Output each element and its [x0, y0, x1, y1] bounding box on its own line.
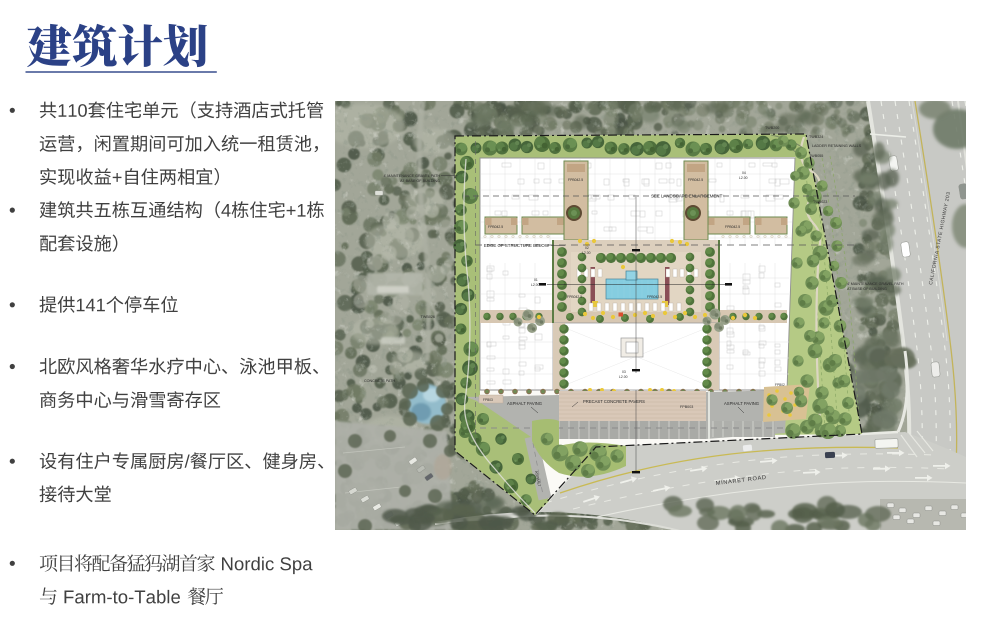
- svg-text:4' MAINTENANCE GRAVEL PATH: 4' MAINTENANCE GRAVEL PATH: [383, 174, 440, 178]
- svg-text:FPB042.5: FPB042.5: [568, 178, 583, 182]
- svg-text:AT BASE OF BUILDING: AT BASE OF BUILDING: [400, 179, 440, 183]
- svg-text:FPB02: FPB02: [775, 383, 785, 387]
- svg-text:TWB055: TWB055: [809, 154, 823, 158]
- svg-text:L2.00: L2.00: [619, 375, 628, 379]
- svg-text:TWB324: TWB324: [809, 135, 823, 139]
- svg-text:03: 03: [622, 370, 626, 374]
- svg-text:ASPHALT PAVING: ASPHALT PAVING: [724, 401, 759, 406]
- svg-text:CONCRETE PATH: CONCRETE PATH: [364, 379, 395, 383]
- svg-text:FPB042.5: FPB042.5: [688, 178, 703, 182]
- svg-text:SEE LANDSCAPE ENLARGEMENT: SEE LANDSCAPE ENLARGEMENT: [651, 194, 723, 199]
- svg-text:ASPHALT PAVING: ASPHALT PAVING: [507, 401, 542, 406]
- svg-text:FPB03: FPB03: [483, 398, 493, 402]
- svg-text:FPB042.5: FPB042.5: [488, 225, 503, 229]
- svg-text:04: 04: [742, 171, 746, 175]
- svg-text:FPB042.5: FPB042.5: [725, 225, 740, 229]
- svg-text:LADDER RETAINING WALLS: LADDER RETAINING WALLS: [812, 144, 862, 148]
- svg-text:AT BASE OF BUILDING: AT BASE OF BUILDING: [847, 287, 887, 291]
- svg-text:FPB003: FPB003: [680, 405, 693, 409]
- svg-text:TWB023: TWB023: [813, 200, 827, 204]
- svg-text:FPB042.5: FPB042.5: [647, 295, 662, 299]
- svg-text:FPB042.5: FPB042.5: [567, 295, 582, 299]
- svg-text:01: 01: [534, 278, 538, 282]
- svg-text:L2.00: L2.00: [739, 176, 748, 180]
- svg-text:4' MAINTENANCE GRAVEL PATH: 4' MAINTENANCE GRAVEL PATH: [847, 282, 904, 286]
- svg-text:TWB200: TWB200: [765, 126, 779, 130]
- svg-text:02: 02: [585, 246, 589, 250]
- svg-text:L2.00: L2.00: [531, 283, 540, 287]
- svg-text:EDGE OF STRUCTURE BELOW: EDGE OF STRUCTURE BELOW: [484, 243, 550, 248]
- svg-text:PRECAST CONCRETE PAVERS: PRECAST CONCRETE PAVERS: [583, 399, 645, 404]
- svg-text:TWB026: TWB026: [421, 315, 435, 319]
- svg-text:L2.00: L2.00: [582, 251, 591, 255]
